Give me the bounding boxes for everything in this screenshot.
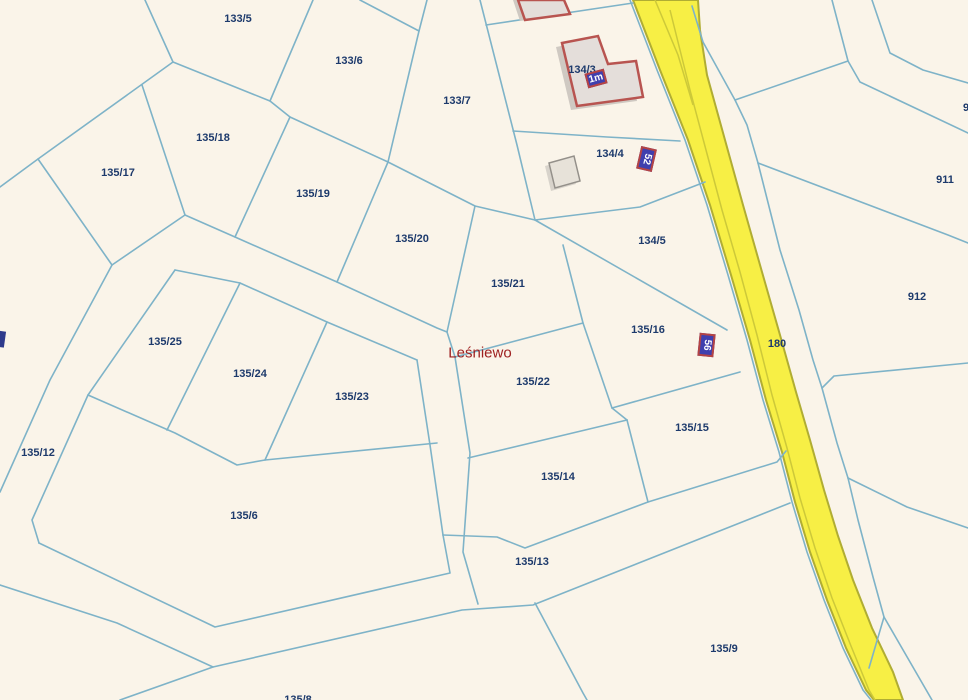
parcel-boundary-line	[337, 162, 388, 282]
parcel-boundary-line	[270, 0, 313, 101]
parcel-boundary-line	[443, 451, 786, 548]
parcel-boundary-line	[447, 332, 478, 604]
parcel-boundary-line	[38, 62, 173, 159]
parcel-label-135/15: 135/15	[675, 422, 709, 434]
parcel-label-135/13: 135/13	[515, 556, 549, 568]
parcel-boundary-line	[612, 372, 740, 408]
road-surface	[633, 0, 903, 700]
parcel-label-134/4: 134/4	[596, 148, 624, 160]
parcel-label-911: 911	[936, 174, 954, 186]
parcel-boundary-line	[265, 322, 327, 460]
parcel-boundary-line	[120, 667, 213, 700]
parcel-label-133/6: 133/6	[335, 55, 363, 67]
parcel-boundary-line	[480, 0, 535, 220]
cadastral-map-viewport[interactable]: 133/5133/6133/7135/18135/17135/19135/201…	[0, 0, 968, 700]
parcel-boundary-line	[692, 6, 884, 668]
parcel-label-135/6: 135/6	[230, 510, 258, 522]
parcel-label-135/9: 135/9	[710, 643, 738, 655]
parcel-boundary-line	[0, 159, 38, 187]
building-outline	[518, 0, 570, 20]
parcel-boundary-line	[848, 61, 968, 133]
place-label-Leśniewo: Leśniewo	[448, 345, 511, 362]
parcel-boundary-line	[563, 245, 627, 420]
parcel-boundary-line	[848, 478, 968, 528]
parcel-boundary-line	[142, 85, 185, 215]
parcel-boundary-line	[468, 420, 627, 458]
parcel-boundary-line	[535, 603, 587, 700]
parcel-boundary-line	[822, 363, 968, 388]
parcel-label-133/5: 133/5	[224, 13, 252, 25]
parcel-boundary-line	[627, 420, 648, 502]
parcel-label-135/16: 135/16	[631, 324, 665, 336]
parcel-label-135/25: 135/25	[148, 336, 182, 348]
parcel-label-135/20: 135/20	[395, 233, 429, 245]
parcel-boundary-line	[832, 0, 848, 61]
parcel-label-134/5: 134/5	[638, 235, 666, 247]
parcel-label-135/14: 135/14	[541, 471, 575, 483]
parcel-boundary-line	[32, 270, 175, 543]
parcel-label-9: 9	[963, 102, 968, 114]
parcel-boundary-line	[235, 117, 290, 237]
parcel-boundary-line	[167, 283, 240, 430]
buildings-layer	[513, 0, 643, 191]
parcel-boundary-line	[735, 61, 848, 100]
parcel-boundary-line	[872, 0, 968, 83]
parcel-label-135/8: 135/8	[284, 694, 312, 700]
parcel-label-180: 180	[768, 338, 786, 350]
parcel-label-135/23: 135/23	[335, 391, 369, 403]
parcel-label-135/19: 135/19	[296, 188, 330, 200]
parcel-label-135/22: 135/22	[516, 376, 550, 388]
parcel-label-133/7: 133/7	[443, 95, 471, 107]
parcel-boundary-line	[112, 215, 185, 265]
parcel-label-135/12: 135/12	[21, 447, 55, 459]
parcel-boundary-line	[39, 535, 450, 627]
parcel-label-135/24: 135/24	[233, 368, 267, 380]
parcel-boundary-line	[175, 270, 417, 360]
parcel-boundary-line	[145, 0, 173, 62]
parcel-boundary-line	[417, 360, 443, 535]
parcel-boundary-line	[447, 206, 475, 332]
parcel-label-135/17: 135/17	[101, 167, 135, 179]
parcel-label-135/18: 135/18	[196, 132, 230, 144]
parcel-label-912: 912	[908, 291, 926, 303]
parcel-boundary-line	[513, 131, 680, 141]
parcel-boundary-line	[360, 0, 419, 31]
road-layer	[633, 0, 903, 700]
address-marker-56: 56	[697, 333, 715, 358]
parcel-boundary-line	[0, 265, 112, 492]
parcel-label-135/21: 135/21	[491, 278, 525, 290]
parcel-boundary-line	[88, 395, 437, 465]
